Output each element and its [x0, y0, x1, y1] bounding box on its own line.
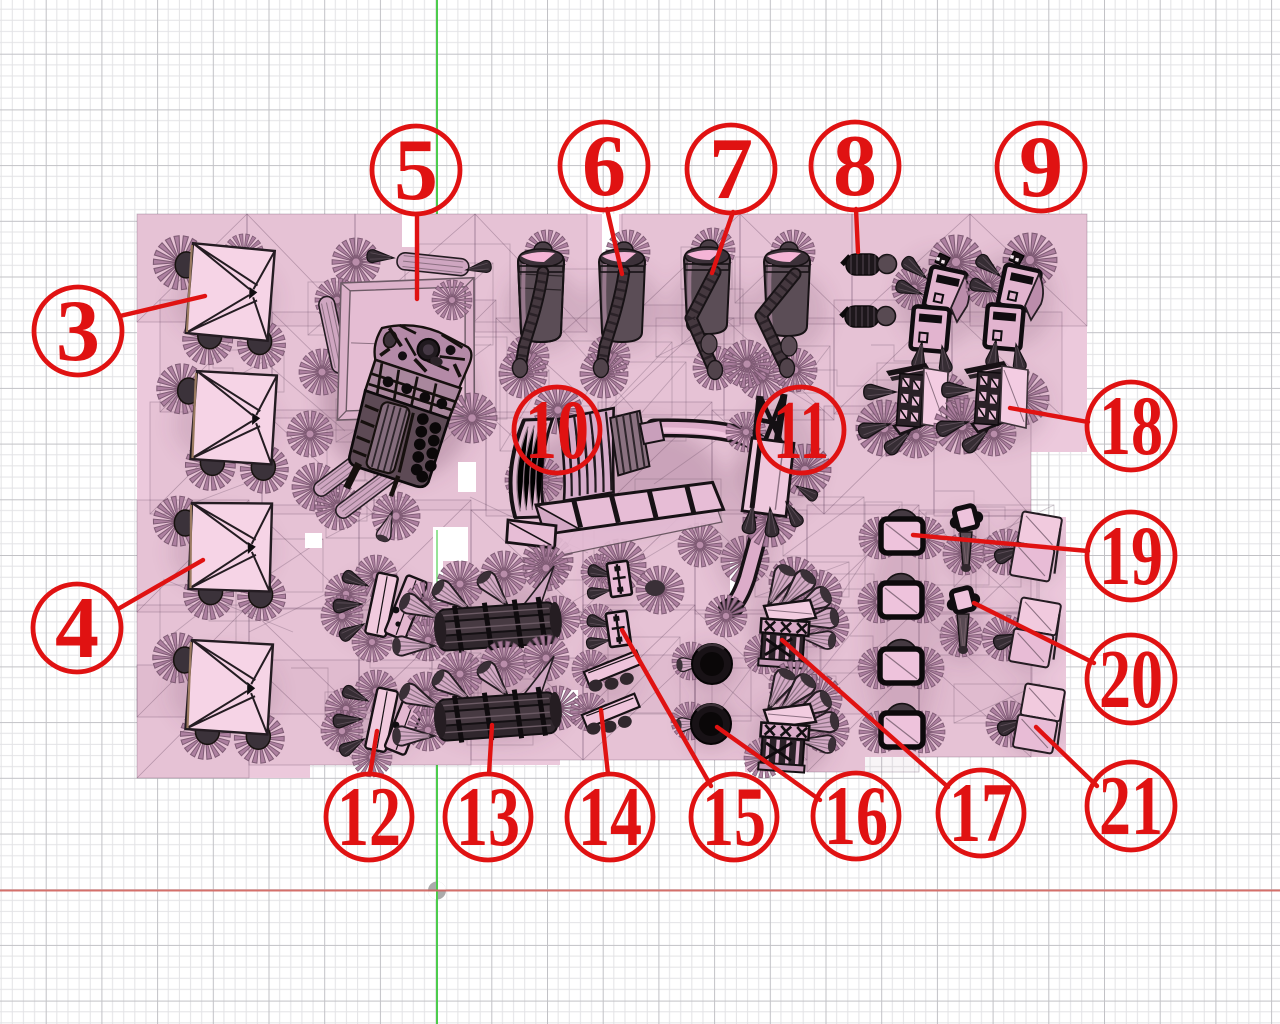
svg-text:14: 14	[578, 770, 642, 864]
svg-text:16: 16	[824, 769, 888, 863]
svg-text:21: 21	[1099, 759, 1163, 853]
svg-text:18: 18	[1099, 379, 1163, 473]
svg-text:5: 5	[394, 122, 438, 219]
svg-text:15: 15	[702, 770, 766, 864]
svg-text:17: 17	[949, 766, 1013, 860]
svg-text:6: 6	[582, 118, 626, 215]
svg-text:11: 11	[773, 384, 829, 477]
svg-text:3: 3	[56, 283, 100, 380]
svg-text:13: 13	[456, 770, 520, 864]
svg-text:9: 9	[1019, 119, 1063, 216]
svg-text:19: 19	[1099, 509, 1163, 603]
svg-text:7: 7	[709, 121, 753, 218]
svg-text:8: 8	[833, 118, 877, 215]
svg-text:10: 10	[525, 383, 589, 477]
svg-text:12: 12	[337, 770, 401, 864]
svg-text:20: 20	[1099, 633, 1163, 726]
svg-text:4: 4	[55, 580, 99, 677]
